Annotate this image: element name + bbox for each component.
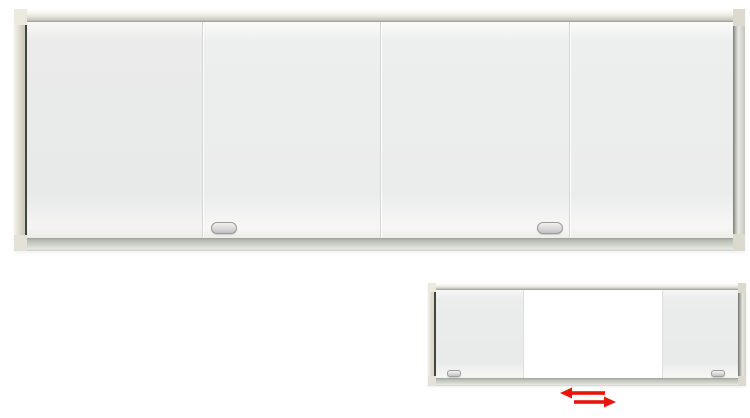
frame-corner-top-right <box>738 283 746 293</box>
panel-handle-left <box>211 222 237 234</box>
frame-corner-bottom-left <box>14 235 27 251</box>
panel-handle-right <box>711 370 725 377</box>
panel-handle-right <box>537 222 563 234</box>
sliding-panels-open <box>436 290 738 378</box>
sliding-panel-4 <box>569 22 733 238</box>
frame-corner-top-left <box>428 283 436 292</box>
frame-top-rail <box>428 283 746 290</box>
sliding-panel-1 <box>27 22 202 238</box>
exposed-center-board <box>524 290 662 378</box>
frame-corner-bottom-right <box>733 234 745 251</box>
product-image-sliding-whiteboard <box>0 0 750 418</box>
left-right-slide-arrows-icon <box>558 386 618 410</box>
open-panel-left <box>436 290 524 378</box>
frame-left-rail <box>428 283 436 386</box>
main-whiteboard <box>14 9 745 251</box>
sliding-panel-2 <box>202 22 380 238</box>
frame-corner-bottom-right <box>738 376 746 386</box>
sliding-panels <box>27 22 733 238</box>
frame-top-rail <box>14 9 745 22</box>
sliding-panel-3 <box>380 22 569 238</box>
inset-whiteboard-open <box>428 283 746 386</box>
frame-corner-top-left <box>14 9 27 25</box>
frame-bottom-tray <box>428 378 746 386</box>
frame-corner-top-right <box>733 9 745 26</box>
frame-right-rail <box>733 9 745 251</box>
frame-corner-bottom-left <box>428 376 436 386</box>
frame-left-rail <box>14 9 27 251</box>
frame-right-rail <box>738 283 746 386</box>
open-panel-right <box>662 290 738 378</box>
frame-bottom-tray <box>14 238 745 251</box>
panel-handle-left <box>447 370 461 377</box>
